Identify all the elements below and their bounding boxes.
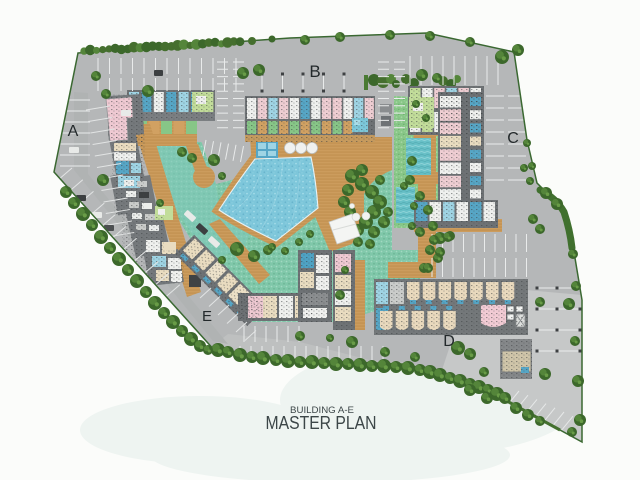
svg-text:A: A (68, 123, 79, 140)
svg-text:D: D (443, 333, 455, 350)
svg-text:B: B (309, 62, 320, 81)
svg-text:C: C (507, 130, 519, 147)
svg-text:MASTER PLAN: MASTER PLAN (266, 412, 377, 433)
svg-text:E: E (202, 308, 212, 325)
